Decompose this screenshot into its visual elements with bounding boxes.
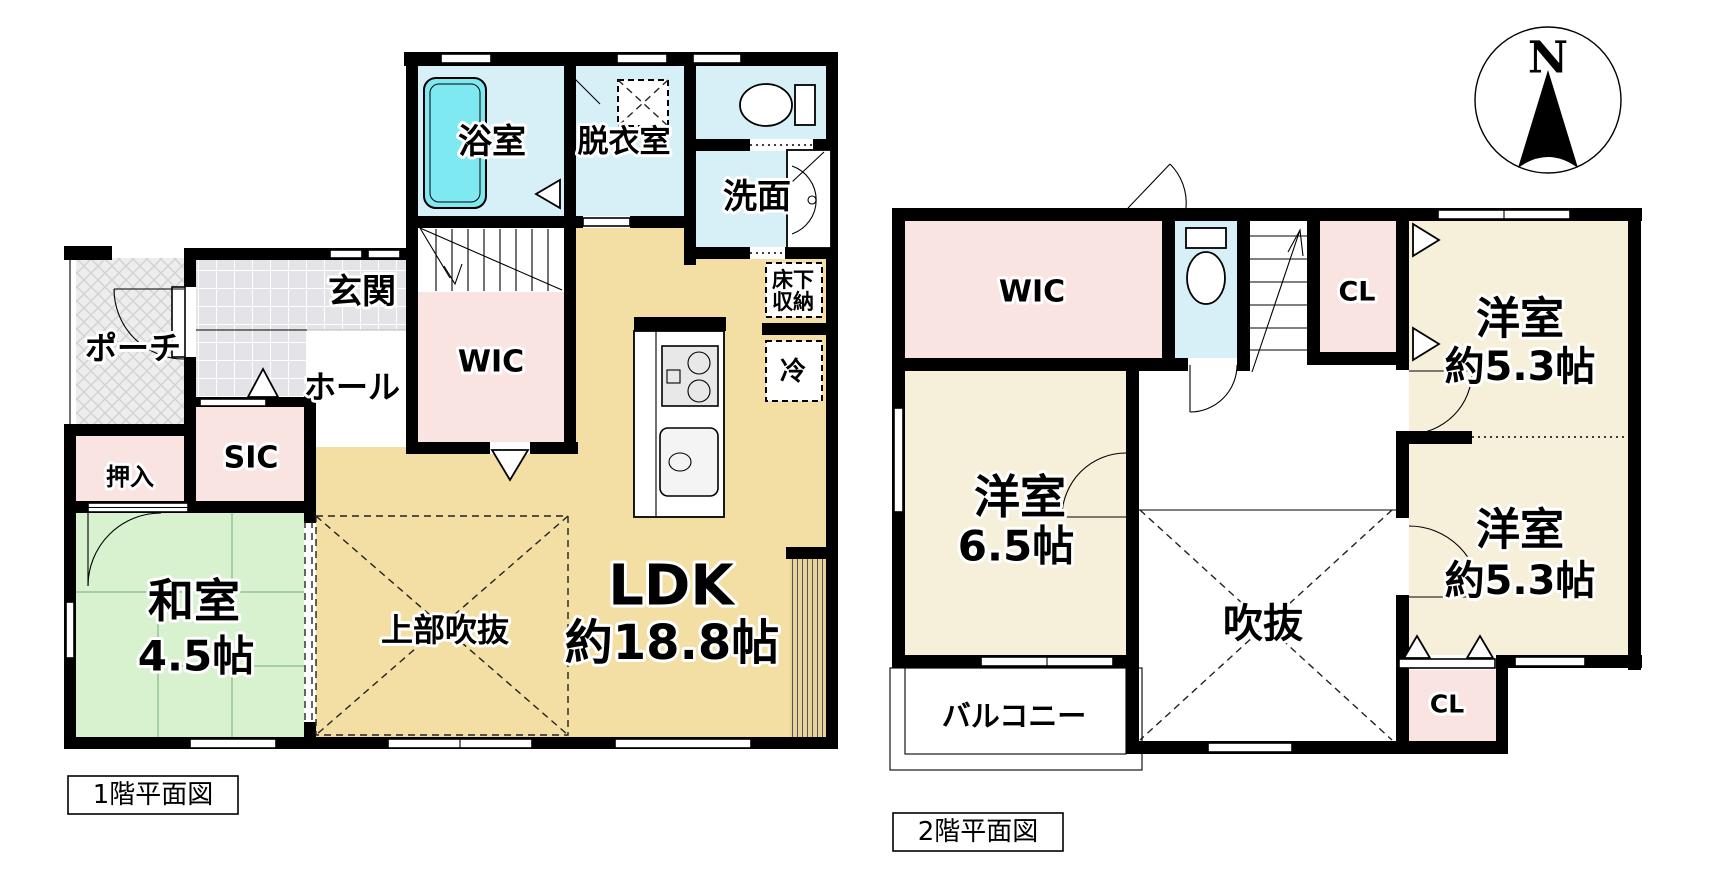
label-washitsu-size: 4.5帖: [138, 632, 254, 681]
ldk-louver-band: [790, 555, 826, 737]
label-void-2f: 吹抜: [1223, 601, 1303, 647]
label-bath: 浴室: [458, 122, 526, 162]
floor1-caption-text: 1階平面図: [93, 780, 214, 810]
label-sic: SIC: [224, 441, 279, 476]
label-bedroom3-size: 6.5帖: [958, 522, 1074, 571]
label-washstand: 洗面: [723, 177, 791, 217]
floor1-caption: 1階平面図: [68, 776, 238, 814]
toilet-2f-icon: [1186, 228, 1226, 304]
label-entrance: 玄関: [328, 272, 396, 312]
floor2-caption: 2階平面図: [893, 813, 1063, 851]
room-ldk-c: [418, 454, 576, 739]
compass-north-label: N: [1528, 33, 1568, 84]
label-porch: ポーチ: [85, 329, 181, 367]
label-wic-1f: WIC: [458, 345, 524, 380]
label-oshiire: 押入: [106, 463, 154, 491]
label-void-above: 上部吹抜: [381, 611, 509, 649]
label-fridge: 冷: [780, 356, 806, 387]
label-hall: ホール: [304, 368, 400, 406]
toilet-1f-icon: [740, 84, 815, 126]
label-bedroom2: 洋室: [1476, 505, 1564, 556]
label-bedroom3: 洋室: [974, 470, 1066, 524]
washing-machine-icon: [618, 80, 668, 126]
label-dressing: 脱衣室: [578, 124, 671, 160]
label-cl-top: CL: [1338, 277, 1375, 308]
room-ldk-d: [316, 447, 418, 739]
label-bedroom1-size: 約5.3帖: [1445, 344, 1596, 390]
label-underfloor-1: 床下: [772, 268, 814, 292]
label-washitsu: 和室: [148, 574, 240, 628]
label-wic-2f: WIC: [999, 275, 1065, 310]
label-bedroom2-size: 約5.3帖: [1445, 558, 1596, 604]
floor-plan-drawing: N 浴室 脱衣室 洗面 ポーチ 玄関 ホール WIC SIC 押入 和室 4.5…: [0, 0, 1734, 893]
floor2-caption-text: 2階平面図: [918, 817, 1039, 847]
floor-plan-page: N 浴室 脱衣室 洗面 ポーチ 玄関 ホール WIC SIC 押入 和室 4.5…: [0, 0, 1734, 893]
label-balcony: バルコニー: [942, 699, 1086, 733]
vanity-sink-icon: [787, 150, 831, 248]
label-underfloor-2: 収納: [772, 290, 814, 314]
kitchen-counter-icon: [634, 331, 724, 517]
label-bedroom1: 洋室: [1476, 294, 1564, 345]
label-ldk: LDK: [608, 554, 736, 619]
label-ldk-size: 約18.8帖: [565, 615, 779, 671]
label-cl-bottom: CL: [1430, 690, 1464, 719]
